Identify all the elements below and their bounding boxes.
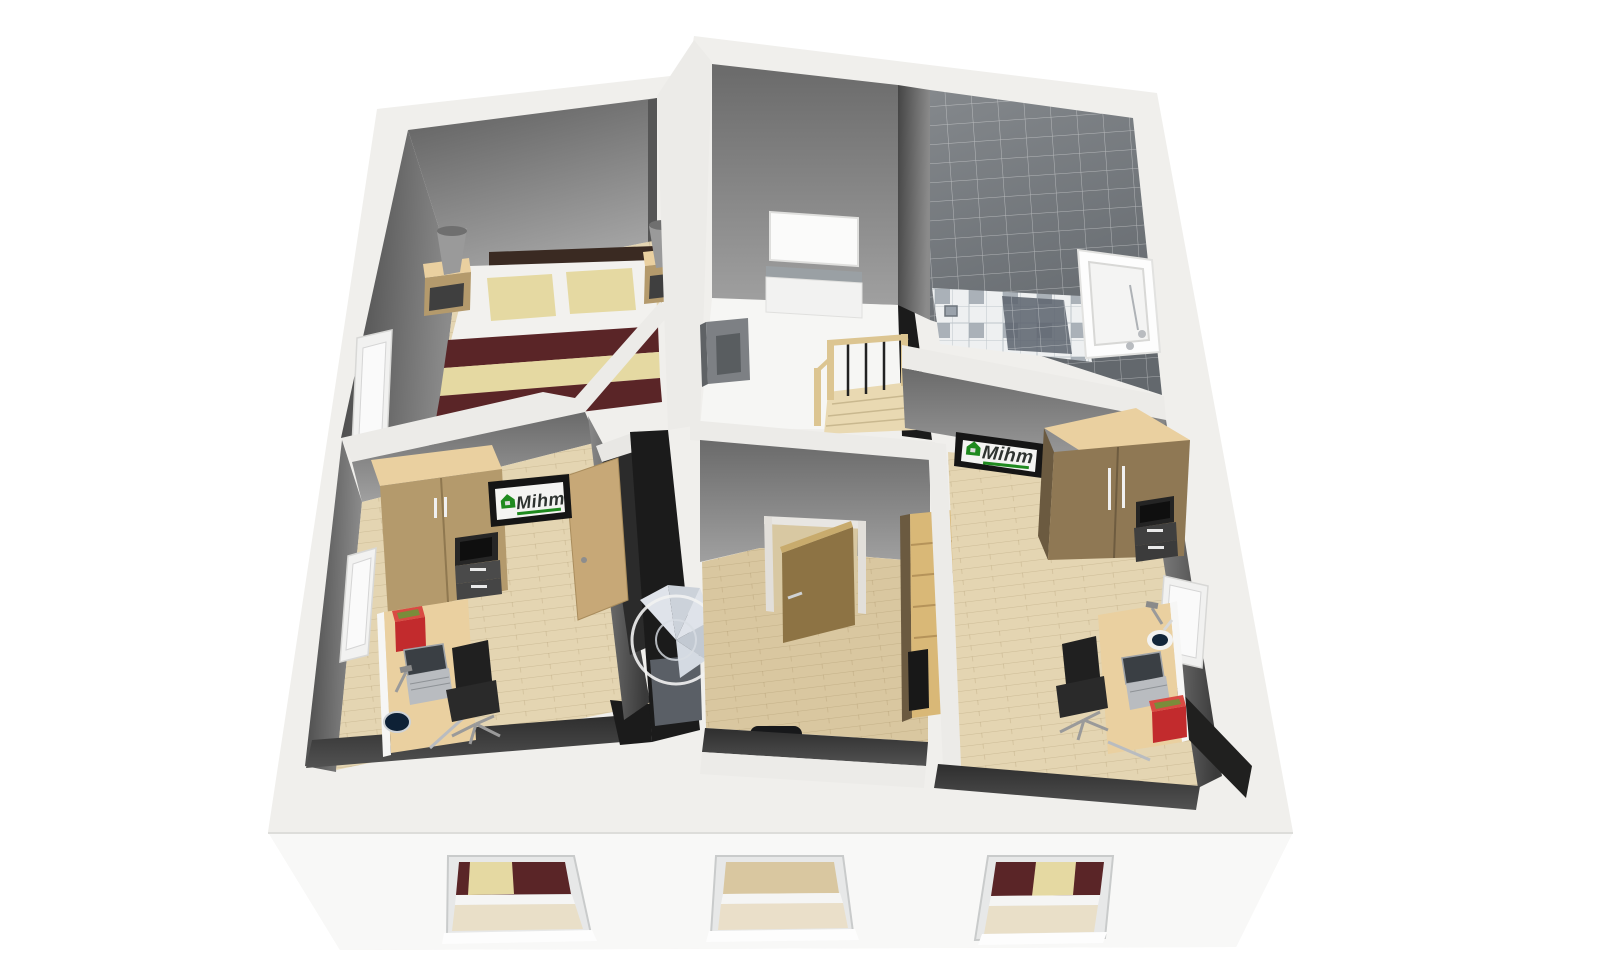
mihm-house-window (505, 501, 510, 506)
red-box (1149, 695, 1187, 743)
lamp-top (437, 226, 467, 236)
stair-newel-lower (814, 368, 821, 426)
window-view-pillow (468, 862, 514, 895)
room-office-left: Mihm (305, 412, 664, 772)
wardrobe-handle-2 (444, 497, 447, 517)
bed-pillow-right (566, 268, 636, 314)
bathtub-faucet (1138, 330, 1146, 338)
office-right-desk (1098, 601, 1189, 760)
red-box (392, 606, 426, 652)
window-lower-pane (452, 904, 583, 931)
office-left-wardrobe (371, 445, 508, 614)
wardrobe-handle-1 (434, 498, 437, 518)
floor-drain (945, 306, 957, 316)
room-hallway (700, 64, 932, 440)
drawer-handle-2 (1148, 546, 1164, 549)
mihm-house-window (970, 448, 975, 453)
mirror-panel (770, 212, 858, 266)
bed-pillow-left (487, 274, 556, 321)
window-view-floor (723, 862, 839, 894)
wardrobe-handle-2 (1122, 466, 1125, 508)
room-middle (690, 420, 956, 788)
door-jamb-right (858, 521, 866, 614)
bathroom-west-wall (898, 85, 930, 320)
shower-grid (1002, 296, 1072, 354)
floorplan-render: Mihm (0, 0, 1611, 957)
wardrobe-handle-1 (1108, 468, 1111, 510)
facade-window-2 (706, 856, 859, 942)
drawer-handle-2 (471, 585, 487, 588)
office-right-wardrobe (1038, 408, 1190, 562)
window-outer-sill (706, 929, 859, 942)
floorplan-svg: Mihm (0, 0, 1611, 957)
window-sill-bar (989, 895, 1100, 906)
drawer-handle-1 (470, 568, 486, 571)
mug-interior (1152, 634, 1168, 646)
red-box-front (1152, 706, 1187, 743)
door-handle (581, 557, 587, 563)
window-lower-pane (718, 903, 848, 930)
cabinet-panel (716, 333, 741, 375)
sideboard-body (766, 277, 862, 318)
window-sill-bar (455, 895, 575, 905)
window-view-pillow (1032, 862, 1076, 896)
facade-window-1 (442, 856, 597, 944)
office-left-mihm-screen: Mihm (488, 474, 572, 527)
hallway-wall-cabinet (700, 318, 750, 387)
drawer-handle-1 (1147, 529, 1163, 532)
bathtub (1078, 250, 1160, 358)
bathtub-faucet (1126, 342, 1134, 350)
shelf-dark-compartment (908, 649, 929, 711)
window-outer-sill (978, 932, 1107, 945)
window-lower-pane (984, 905, 1098, 934)
window-pane (359, 342, 386, 436)
facade-window-3 (975, 856, 1113, 945)
window-sill-bar (721, 893, 843, 904)
stair-post-left (827, 340, 834, 400)
